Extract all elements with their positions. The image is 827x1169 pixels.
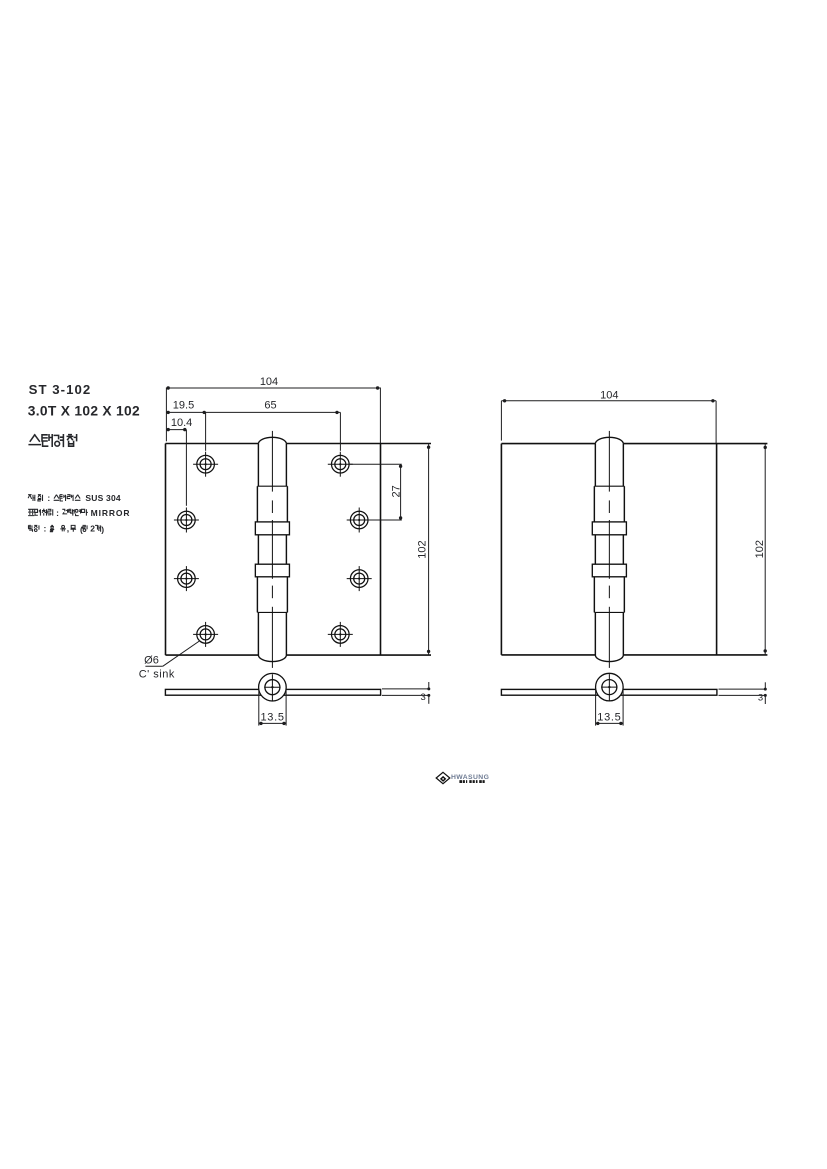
svg-text:65: 65 xyxy=(264,400,276,412)
svg-text:27: 27 xyxy=(391,485,403,497)
svg-text:104: 104 xyxy=(260,376,278,388)
svg-text:13.5: 13.5 xyxy=(597,712,621,724)
svg-text:102: 102 xyxy=(754,540,766,558)
svg-text:HWASUNG: HWASUNG xyxy=(451,774,489,781)
svg-text:104: 104 xyxy=(600,390,618,402)
svg-text:MIRROR: MIRROR xyxy=(91,508,131,518)
svg-text:SUS 304: SUS 304 xyxy=(85,493,120,503)
svg-text::: : xyxy=(56,508,59,518)
svg-text:3: 3 xyxy=(758,692,763,703)
svg-text:,: , xyxy=(67,524,69,534)
svg-text:10.4: 10.4 xyxy=(171,417,192,429)
svg-text:13.5: 13.5 xyxy=(260,712,284,724)
svg-text:): ) xyxy=(101,524,104,534)
svg-text:ST 3-102: ST 3-102 xyxy=(29,382,92,397)
svg-text::: : xyxy=(43,524,46,534)
svg-text:C' sink: C' sink xyxy=(139,668,175,680)
svg-text::: : xyxy=(47,493,50,503)
svg-text:2: 2 xyxy=(90,524,95,534)
svg-text:3.0T X 102 X 102: 3.0T X 102 X 102 xyxy=(28,403,140,418)
svg-text:102: 102 xyxy=(417,540,429,558)
svg-text:Ø6: Ø6 xyxy=(144,654,159,666)
svg-text:3: 3 xyxy=(421,692,426,703)
svg-text:19.5: 19.5 xyxy=(173,400,194,412)
